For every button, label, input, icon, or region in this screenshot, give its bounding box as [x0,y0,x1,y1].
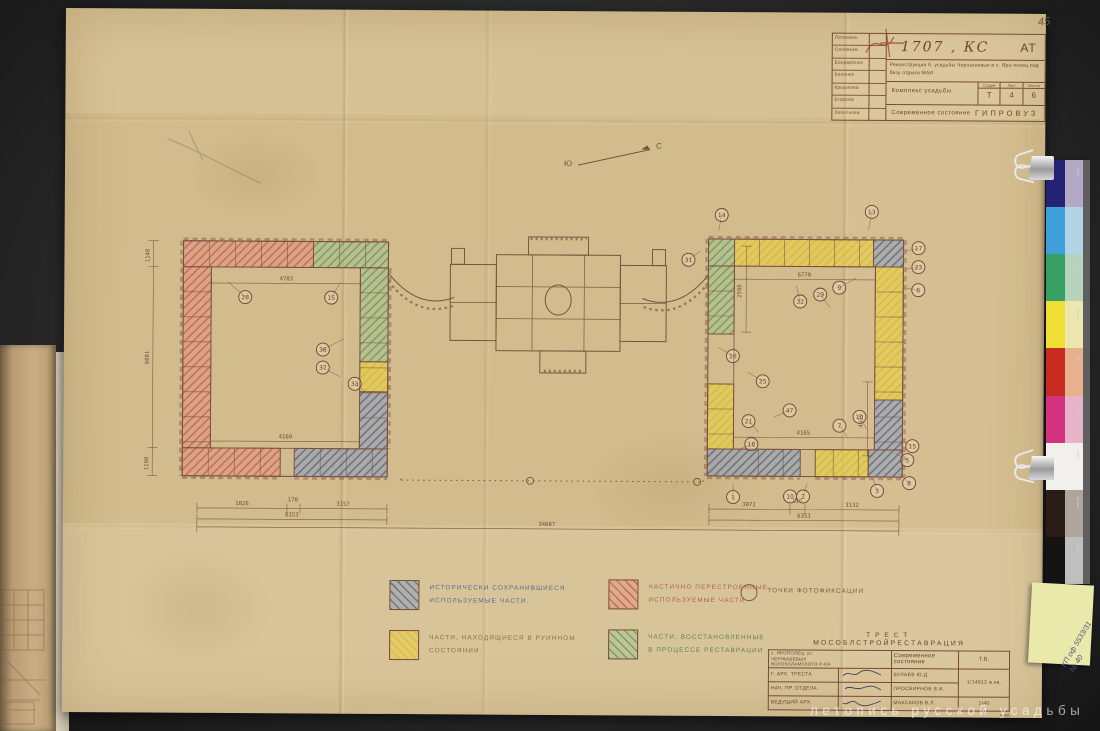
drawing-sheet: 45 ПотемкинСоловьевБондаренкоКлеенкоКрыш… [62,8,1046,718]
dimension-value: 2596 [737,284,743,298]
color-patch [1046,254,1065,301]
wing-outlines [180,234,905,482]
stage-label: Стадия [979,83,1001,88]
gallery-colonnades [388,273,708,311]
mark-tv: Т.В. [959,651,1010,669]
dimension-value: 3072 [742,502,756,508]
series-code: АТ [1020,40,1044,54]
north-label: С [656,142,662,151]
north-arrow: Ю С [564,139,674,179]
stage-value: Т [978,89,1000,105]
signer-name: Крышкова [832,83,868,96]
central-palace [450,236,667,373]
dimension-value: 6770 [798,272,812,278]
dimension-value: 34687 [538,522,555,528]
photo-point-number: 17 [915,245,923,252]
photo-of-drawing: 45 ПотемкинСоловьевБондаренкоКлеенкоКрыш… [0,0,1100,731]
pencil-mark [159,121,269,192]
signer-name: Клеенко [833,71,869,84]
dimension-value: 4783 [280,276,294,282]
color-patch [1046,396,1065,443]
name-dept-head: ПРОСВИРНОВ В.И. [891,682,959,696]
photo-point-number: 31 [685,257,693,264]
strip-label: blue [1076,168,1081,176]
page-number: 45 [1038,16,1051,29]
dimension-texts: 1826170315761533468730721503132635347834… [144,249,866,530]
dimension-value: 4165 [797,430,811,436]
stain [122,548,273,669]
photo-point-number: 13 [868,209,876,216]
trust-line1: ТРЕСТ [768,631,1010,639]
sticky-note: КП оф 5533/31№ 40 [1028,582,1094,665]
strip-label: white [1076,450,1081,459]
photo-point-number: 21 [745,418,753,425]
binder-clip-top [1014,152,1054,182]
state-subtitle: Современное состояние [886,110,975,117]
strip-label: magenta [1076,403,1081,419]
photo-point-number: 15 [908,443,916,450]
project-title: Реконструкция б. усадьбы Чернышевых в с.… [887,60,1045,83]
binder-clip-middle [1014,452,1054,482]
dimension-value: 6153 [285,512,299,518]
legend-circle-symbol [740,584,757,601]
dimension-value: 3157 [336,502,350,508]
organization: ГИПРОВУЗ [975,109,1044,118]
color-patch [1046,301,1065,348]
sheets-label: Листов [1023,83,1044,88]
photo-point-number: 14 [718,212,726,219]
object-name: Комплекс усадьбы [886,82,977,105]
watermark-text: летопись русской усадьбы [810,703,1084,718]
strip-label: brown [1076,497,1081,508]
photo-point-number: 25 [759,378,767,385]
photo-point-number: 16 [729,353,737,360]
photo-point-number: 3 [875,488,879,495]
ink-scribble [856,23,926,63]
stage-sheet-table: Стадия Лист Листов Т 4 6 [977,83,1044,105]
strip-label: cyan [1076,215,1081,223]
dimension-value: 4160 [279,434,293,440]
dimension-value: 170 [288,497,298,503]
photo-point-number: 5 [905,457,909,464]
strip-label: black [1076,544,1081,553]
color-patch [1046,537,1065,584]
color-calibration-strip: bluecyangreenyellowredmagentawhitebrownb… [1046,160,1090,584]
legend-item-ruined: Части, находящиеся в руинномсостоянии. [389,630,576,661]
signature [838,682,891,696]
photo-point-number: 7 [838,423,842,430]
trust-line2: МОСОБЛСТРОЙРЕСТАВРАЦИЯ [768,639,1010,647]
photo-point-number: 15 [327,295,335,302]
role-chief-architect: Г. АРХ. ТРЕСТА [768,667,838,681]
signature [838,668,891,682]
color-patch [1046,348,1065,395]
photo-point-number: 29 [816,292,824,299]
legend-item-restored: Части, восстановленныев процессе реставр… [608,629,765,660]
legend-swatch-green [608,629,638,659]
legend-swatch-blue [389,580,419,610]
photo-point-number: 32 [796,299,804,306]
dimension-value: 3132 [845,503,859,509]
colored-wall-bands [182,236,903,480]
name-chief-architect: БУЛАЕВ Ю.Д. [891,668,959,682]
sheet-label: Лист [1001,83,1023,88]
photo-point-number: 28 [241,294,249,301]
legend-item-photo-points: Точки фотофиксации [740,584,864,602]
legend-swatch-yellow [389,630,419,660]
photo-point-number: 37 [319,365,327,372]
sheet-value: 4 [1001,89,1023,105]
dimension-value: 6081 [145,351,151,365]
strip-label: green [1076,262,1081,272]
doc-number: 1/14912 ж.кв. [959,668,1010,696]
photo-point-number: 6 [916,287,920,294]
photo-point-number: 47 [786,408,794,415]
photo-point-number: 2 [801,494,805,501]
legend-item-preserved: Исторически сохранившиесяиспользуемые ча… [389,580,565,611]
photo-point-number: 36 [319,347,327,354]
legend-swatch-red [608,579,638,609]
sheets-value: 6 [1023,89,1044,105]
color-patch [1046,207,1065,254]
site-plan: 1826170315761533468730721503132635347834… [117,185,959,540]
photo-point-number: 8 [907,480,911,487]
south-label: Ю [564,159,572,168]
state-subtitle-bottom: Современное состояние [891,651,959,669]
fence-line [401,476,703,485]
photo-point-number: 10 [856,414,864,421]
strip-label: yellow [1076,309,1081,320]
bottom-stamp-table: с. ЯРОПОЛЕЦ, ус. ЧЕРНЫШЕВЫХ ВОЛОКОЛАМСКО… [768,649,1010,711]
color-patch [1046,490,1065,537]
signer-name: Леонтьева [832,108,868,120]
under-drawing-lines [0,560,70,731]
dimension-value: 1190 [144,457,150,471]
signer-name: Егорова [832,96,868,109]
photo-point-number: 23 [915,264,923,271]
strip-label: red [1076,356,1081,362]
photo-point-number: 33 [351,381,359,388]
photo-point-number: 10 [786,494,794,501]
role-dept-head: НАЧ. ПР. ОТДЕЛА [768,681,838,695]
photo-point-number: 9 [837,285,841,292]
photo-point-number: 18 [748,441,756,448]
photo-point-number: 1 [731,494,735,501]
dimension-value: 6353 [797,513,811,519]
dimension-value: 1826 [235,501,249,507]
strip-edge-labels: bluecyangreenyellowredmagentawhitebrownb… [1083,160,1090,584]
object-address: с. ЯРОПОЛЕЦ, ус. ЧЕРНЫШЕВЫХ ВОЛОКОЛАМСКО… [768,650,891,668]
dimension-value: 1140 [145,249,151,263]
